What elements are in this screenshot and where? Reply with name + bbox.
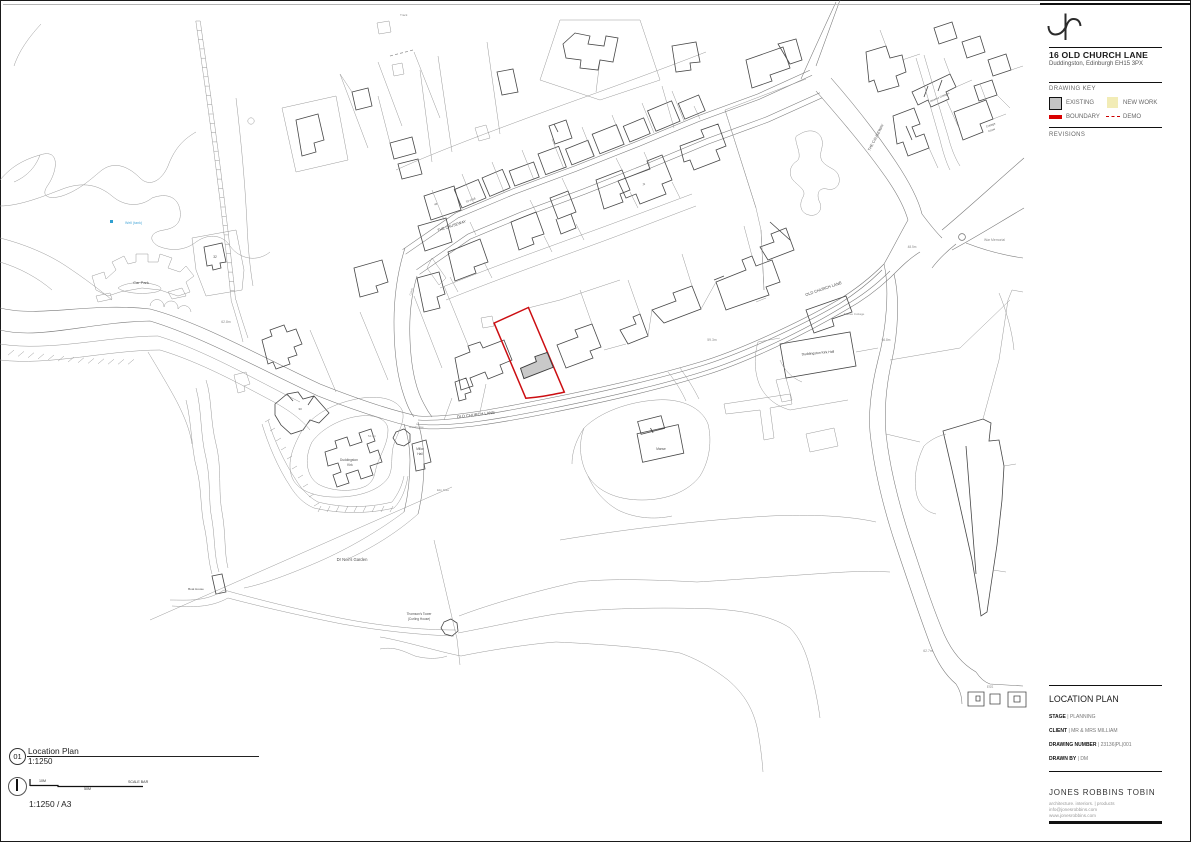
svg-text:Hall: Hall (417, 452, 423, 456)
svg-text:Kirk: Kirk (347, 463, 353, 467)
svg-text:62.8m: 62.8m (221, 320, 231, 324)
svg-text:THE CAUSEWAY: THE CAUSEWAY (437, 219, 467, 232)
svg-text:33: 33 (298, 407, 302, 411)
svg-text:32: 32 (213, 255, 217, 259)
svg-text:Duddingston Kirk Hall: Duddingston Kirk Hall (801, 350, 834, 357)
svg-text:SCALE BAR: SCALE BAR (128, 780, 148, 784)
svg-text:Duddingston: Duddingston (340, 458, 358, 462)
svg-text:Boat House: Boat House (188, 587, 204, 591)
svg-text:Dr Neil's Garden: Dr Neil's Garden (337, 557, 368, 562)
svg-text:Thomson's Tower: Thomson's Tower (407, 612, 433, 616)
svg-text:ESS: ESS (987, 685, 993, 689)
svg-text:Gatehouse: Gatehouse (409, 425, 424, 429)
svg-text:50M: 50M (84, 787, 91, 790)
svg-text:J2: J2 (642, 182, 646, 187)
svg-text:Manse: Manse (656, 447, 666, 451)
svg-text:62.7m: 62.7m (923, 649, 933, 653)
svg-text:(Curling House): (Curling House) (408, 617, 430, 621)
svg-text:OLD CHURCH LANE: OLD CHURCH LANE (805, 280, 843, 297)
svg-text:Elm Tree: Elm Tree (437, 488, 449, 492)
svg-text:War Memorial: War Memorial (984, 238, 1005, 242)
svg-text:Millar: Millar (416, 447, 425, 451)
svg-text:THE CAUSEWAY: THE CAUSEWAY (867, 123, 885, 152)
svg-text:Well (tank): Well (tank) (125, 221, 142, 225)
svg-text:48.5m: 48.5m (908, 245, 917, 249)
svg-text:Meadow Cottages: Meadow Cottages (929, 91, 950, 103)
svg-text:59.3m: 59.3m (707, 338, 717, 342)
svg-text:10M: 10M (39, 779, 46, 783)
svg-text:Manse Cottage: Manse Cottage (844, 312, 865, 316)
svg-text:Car Park: Car Park (133, 280, 149, 285)
svg-text:66.8m: 66.8m (882, 338, 891, 342)
svg-text:OLD CHURCH LANE: OLD CHURCH LANE (457, 410, 496, 420)
svg-text:Track: Track (400, 13, 408, 17)
svg-text:54.9m: 54.9m (368, 434, 377, 438)
